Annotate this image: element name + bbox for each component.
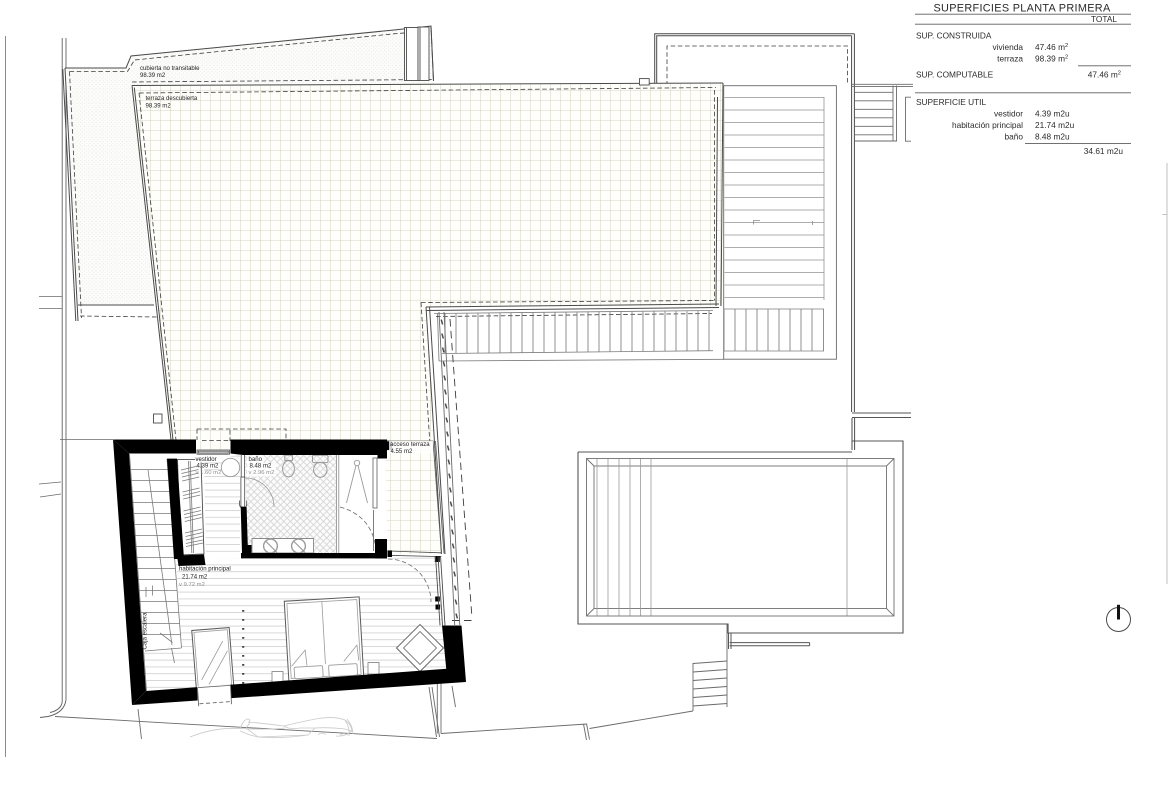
svg-text:4.39 m2: 4.39 m2 — [197, 463, 219, 469]
svg-text:vivienda: vivienda — [993, 42, 1024, 52]
svg-text:baño: baño — [249, 457, 263, 463]
svg-text:acceso terraza: acceso terraza — [390, 442, 430, 448]
svg-text:cubierta no transitable: cubierta no transitable — [140, 66, 200, 72]
svg-text:98.39 m2: 98.39 m2 — [1035, 53, 1068, 63]
svg-text:4.55 m2: 4.55 m2 — [391, 449, 413, 455]
svg-text:terraza: terraza — [997, 53, 1023, 63]
svg-text:Caja escalera: Caja escalera — [143, 612, 149, 650]
svg-text:v 2.96 m2: v 2.96 m2 — [249, 470, 275, 476]
svg-text:8.48 m2u: 8.48 m2u — [1035, 131, 1070, 141]
svg-text:SUPERFICIES PLANTA PRIMERA: SUPERFICIES PLANTA PRIMERA — [933, 3, 1110, 15]
svg-text:v 9.72 m2: v 9.72 m2 — [179, 582, 205, 588]
svg-text:47.46 m2: 47.46 m2 — [1035, 42, 1068, 52]
svg-text:98.39 m2: 98.39 m2 — [140, 73, 166, 79]
svg-text:SUPERFICIE UTIL: SUPERFICIE UTIL — [916, 97, 986, 107]
svg-text:habitación principal: habitación principal — [952, 120, 1023, 130]
svg-text:baño: baño — [1005, 131, 1024, 141]
svg-text:SUP. CONSTRUIDA: SUP. CONSTRUIDA — [916, 31, 992, 41]
svg-text:vestidor: vestidor — [196, 457, 217, 463]
svg-text:vestidor: vestidor — [994, 108, 1023, 118]
svg-text:21.74 m2: 21.74 m2 — [182, 575, 208, 581]
svg-text:SUP. COMPUTABLE: SUP. COMPUTABLE — [916, 69, 994, 79]
svg-text:v 1.60 m2: v 1.60 m2 — [196, 470, 222, 476]
svg-text:34.61 m2u: 34.61 m2u — [1084, 146, 1124, 156]
svg-text:21.74 m2u: 21.74 m2u — [1035, 120, 1075, 130]
svg-text:TOTAL: TOTAL — [1091, 14, 1117, 24]
svg-text:8.48 m2: 8.48 m2 — [250, 463, 272, 469]
svg-text:terraza descubierta: terraza descubierta — [146, 96, 198, 102]
svg-text:98.39 m2: 98.39 m2 — [146, 103, 172, 109]
svg-text:4.39 m2u: 4.39 m2u — [1035, 108, 1070, 118]
svg-text:habitación principal: habitación principal — [179, 567, 231, 573]
svg-text:47.46 m2: 47.46 m2 — [1088, 69, 1121, 79]
